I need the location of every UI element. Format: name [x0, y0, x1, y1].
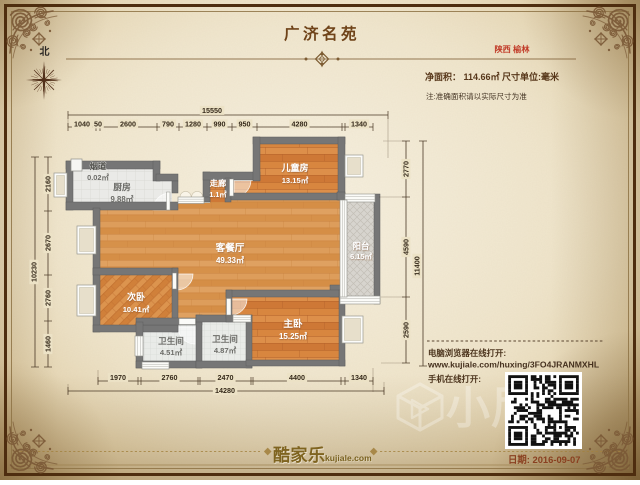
- svg-text:4590: 4590: [402, 239, 411, 255]
- svg-text:1040: 1040: [74, 120, 90, 129]
- svg-text:次卧: 次卧: [127, 291, 145, 302]
- svg-text:1.1㎡: 1.1㎡: [209, 190, 227, 199]
- svg-text:厨房: 厨房: [113, 181, 131, 192]
- svg-text:1340: 1340: [351, 373, 367, 382]
- svg-text:790: 790: [162, 120, 174, 129]
- svg-text:10230: 10230: [30, 262, 39, 282]
- svg-text:客餐厅: 客餐厅: [215, 242, 245, 254]
- svg-text:15550: 15550: [202, 106, 222, 115]
- svg-text:卫生间: 卫生间: [212, 333, 238, 344]
- svg-text:卫生间: 卫生间: [158, 335, 184, 346]
- svg-text:注:准确面积请以实际尺寸为准: 注:准确面积请以实际尺寸为准: [426, 91, 527, 101]
- svg-text:2770: 2770: [402, 161, 411, 177]
- svg-text:kujiale.com: kujiale.com: [325, 453, 372, 463]
- svg-text:10.41㎡: 10.41㎡: [123, 304, 150, 314]
- svg-text:酷家乐: 酷家乐: [273, 445, 326, 465]
- svg-text:0.02㎡: 0.02㎡: [87, 173, 109, 182]
- svg-text:净面积： 114.66㎡ 尺寸单位:毫米: 净面积： 114.66㎡ 尺寸单位:毫米: [425, 71, 560, 82]
- svg-text:2600: 2600: [120, 120, 136, 129]
- svg-text:14280: 14280: [215, 386, 235, 395]
- svg-text:2760: 2760: [44, 290, 53, 306]
- svg-text:4400: 4400: [289, 373, 305, 382]
- svg-text:阳台: 阳台: [353, 241, 370, 251]
- svg-text:11400: 11400: [413, 256, 422, 276]
- svg-text:1970: 1970: [110, 373, 126, 382]
- svg-text:烟道: 烟道: [90, 161, 107, 171]
- svg-text:950: 950: [239, 120, 251, 129]
- svg-text:www.kujiale.com/huxing/3FO4JRA: www.kujiale.com/huxing/3FO4JRANMXHL: [427, 359, 599, 369]
- svg-text:陕西 榆林: 陕西 榆林: [494, 44, 530, 54]
- svg-text:儿童房: 儿童房: [280, 162, 308, 173]
- svg-text:4280: 4280: [292, 120, 308, 129]
- svg-text:9.88㎡: 9.88㎡: [111, 194, 134, 204]
- svg-text:13.15㎡: 13.15㎡: [282, 175, 309, 185]
- svg-text:2160: 2160: [44, 176, 53, 192]
- svg-text:2590: 2590: [402, 322, 411, 338]
- svg-text:2670: 2670: [44, 235, 53, 251]
- svg-text:4.51㎡: 4.51㎡: [160, 347, 183, 357]
- svg-text:电脑浏览器在线打开:: 电脑浏览器在线打开:: [428, 348, 506, 358]
- svg-text:50: 50: [94, 120, 102, 129]
- svg-text:49.33㎡: 49.33㎡: [216, 255, 244, 265]
- svg-text:2470: 2470: [218, 373, 234, 382]
- svg-text:15.25㎡: 15.25㎡: [279, 331, 307, 341]
- svg-text:2760: 2760: [162, 373, 178, 382]
- svg-text:日期: 2016-09-07: 日期: 2016-09-07: [508, 454, 580, 465]
- svg-text:广济名苑: 广济名苑: [284, 24, 360, 43]
- svg-text:6.15㎡: 6.15㎡: [350, 252, 372, 261]
- svg-text:1460: 1460: [44, 336, 53, 352]
- svg-text:走廊: 走廊: [209, 178, 226, 188]
- svg-text:1280: 1280: [185, 120, 201, 129]
- svg-text:1340: 1340: [351, 120, 367, 129]
- svg-text:4.87㎡: 4.87㎡: [214, 345, 237, 355]
- svg-text:北: 北: [40, 45, 50, 58]
- svg-text:主卧: 主卧: [283, 318, 303, 330]
- svg-text:990: 990: [214, 120, 226, 129]
- svg-text:手机在线打开:: 手机在线打开:: [428, 374, 481, 384]
